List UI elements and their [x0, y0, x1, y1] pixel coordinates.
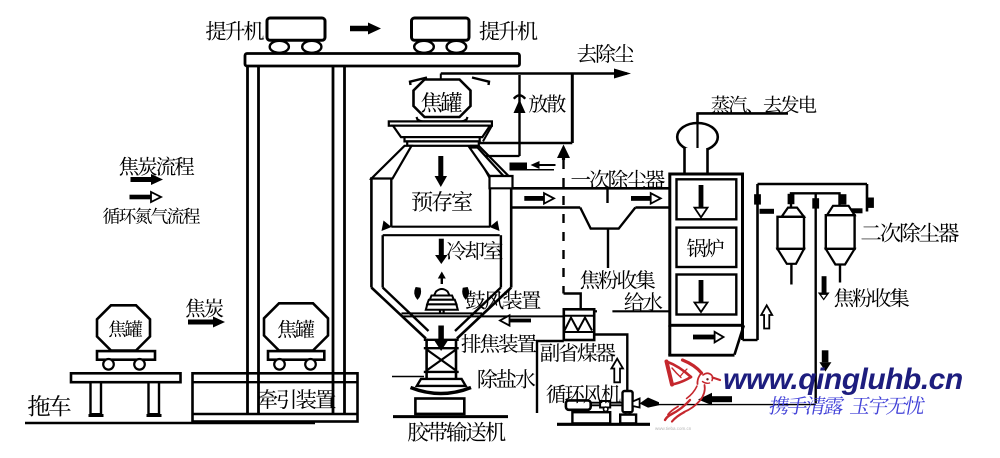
svg-text:www.tieba.com.cn: www.tieba.com.cn — [655, 426, 692, 431]
svg-text:www.qingluhb.cn: www.qingluhb.cn — [723, 363, 963, 396]
